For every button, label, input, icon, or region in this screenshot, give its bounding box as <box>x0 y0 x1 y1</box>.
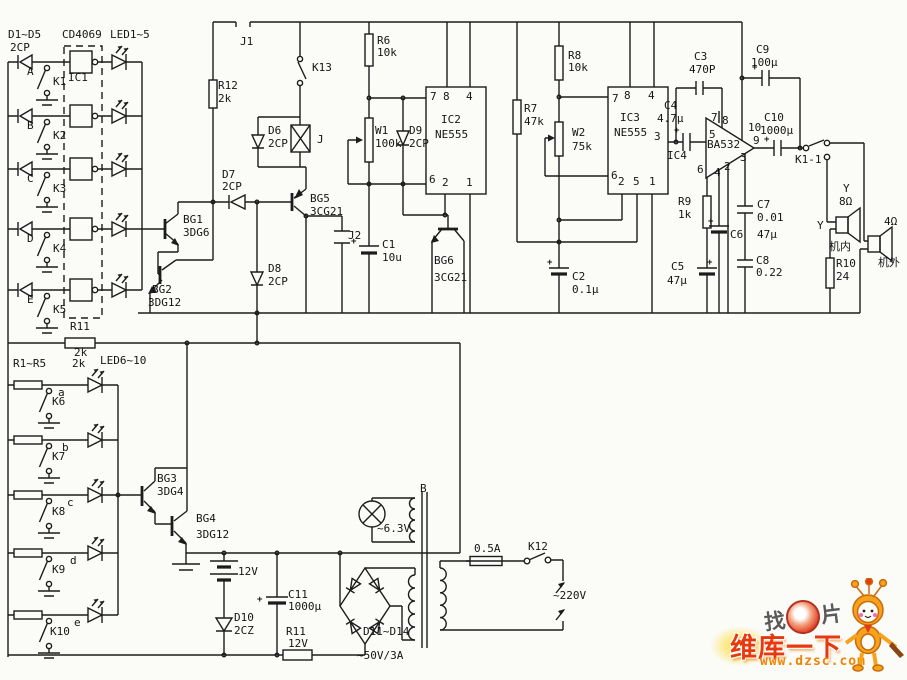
watermark-mascot-icon <box>834 578 906 678</box>
schematic-page: D1~D52CPCD4069LED1~5AIC1K1BK2CK3DK4EK5J1… <box>0 0 907 680</box>
watermark: 找片 维库一下 www.dzsc.com <box>712 578 907 680</box>
